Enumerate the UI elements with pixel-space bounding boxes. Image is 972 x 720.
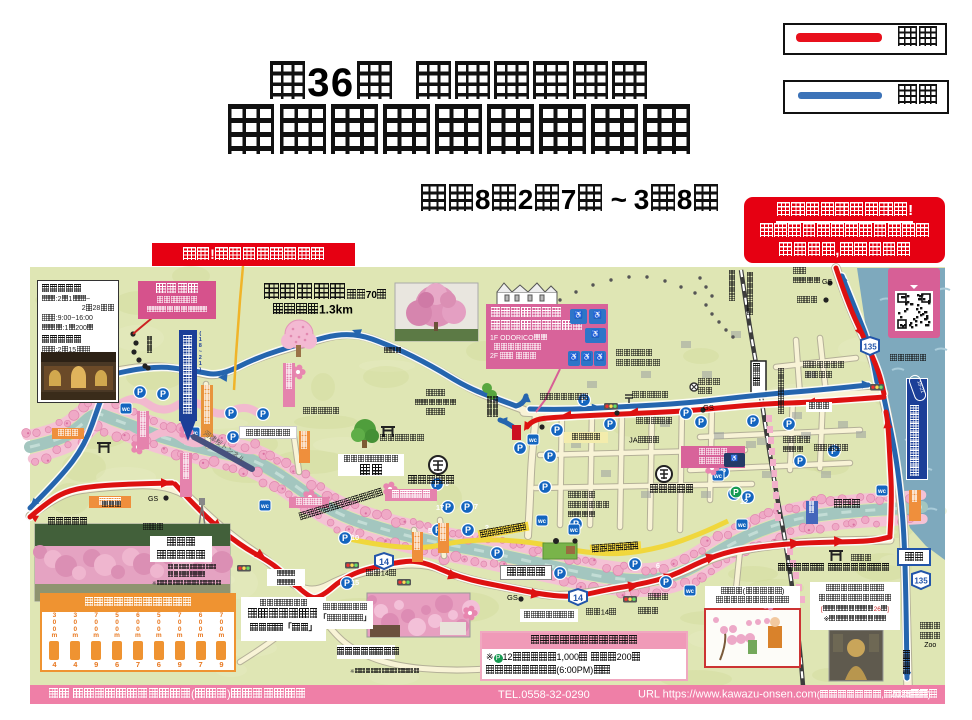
svg-text:6: 6	[656, 561, 660, 570]
svg-text:P: P	[698, 417, 704, 427]
svg-text:wc: wc	[528, 438, 538, 444]
svg-text:wc: wc	[260, 504, 270, 510]
svg-text:135: 135	[914, 577, 928, 586]
svg-text:P: P	[464, 502, 470, 512]
svg-text:P: P	[733, 487, 739, 497]
svg-text:P: P	[786, 419, 792, 429]
svg-text:wc: wc	[737, 523, 747, 529]
svg-text:P: P	[260, 409, 266, 419]
svg-text:7: 7	[474, 502, 478, 511]
svg-text:wc: wc	[685, 589, 695, 595]
svg-text:P: P	[607, 419, 613, 429]
svg-text:P: P	[445, 502, 451, 512]
svg-text:P: P	[797, 456, 803, 466]
svg-text:P: P	[542, 482, 548, 492]
svg-text:P: P	[344, 578, 350, 588]
svg-text:10: 10	[351, 533, 359, 542]
svg-text:P: P	[547, 451, 553, 461]
svg-text:135: 135	[863, 343, 877, 352]
svg-text:P: P	[160, 389, 166, 399]
svg-text:P: P	[557, 568, 563, 578]
svg-text:P: P	[494, 548, 500, 558]
svg-text:P: P	[342, 533, 348, 543]
svg-text:P: P	[465, 525, 471, 535]
svg-text:17: 17	[436, 503, 444, 512]
svg-text:P: P	[632, 559, 638, 569]
svg-text:P: P	[663, 577, 669, 587]
svg-text:wc: wc	[121, 407, 131, 413]
svg-text:P: P	[228, 408, 234, 418]
svg-text:12: 12	[740, 497, 748, 506]
svg-text:P: P	[554, 425, 560, 435]
svg-text:wc: wc	[877, 489, 887, 495]
svg-text:15: 15	[351, 578, 359, 587]
svg-text:P: P	[750, 416, 756, 426]
svg-text:P: P	[517, 443, 523, 453]
svg-text:wc: wc	[537, 519, 547, 525]
svg-text:P: P	[683, 408, 689, 418]
svg-text:wc: wc	[569, 528, 579, 534]
svg-text:14: 14	[573, 593, 583, 603]
svg-text:14: 14	[379, 557, 389, 567]
svg-text:P: P	[137, 387, 143, 397]
svg-text:P: P	[230, 432, 236, 442]
svg-text:5: 5	[428, 526, 432, 535]
